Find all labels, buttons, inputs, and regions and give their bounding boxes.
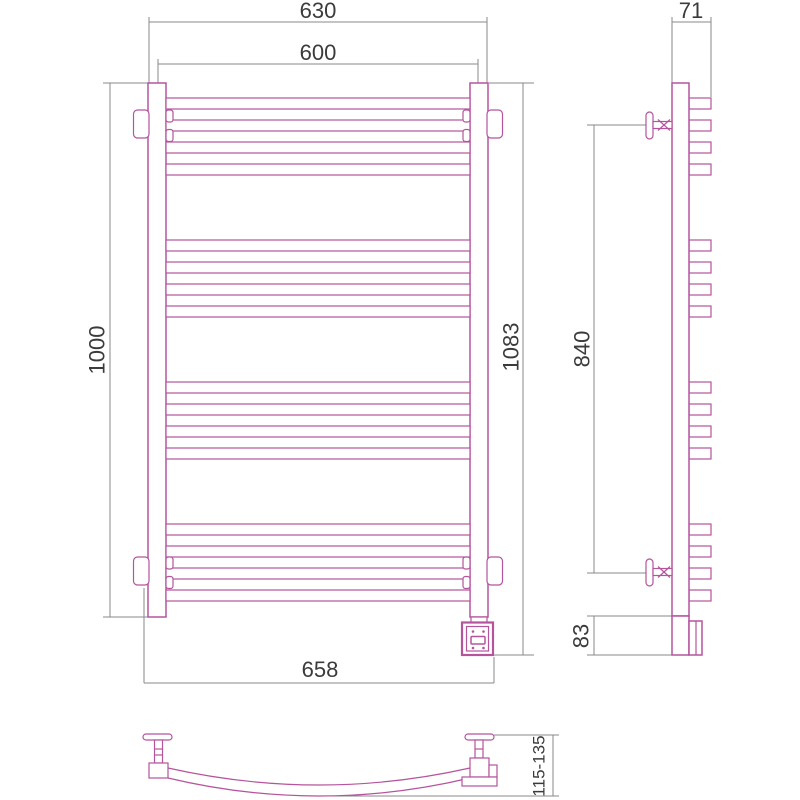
bottom-bracket-right xyxy=(462,734,497,786)
bracket-pin xyxy=(653,122,672,129)
wall-bracket xyxy=(487,110,503,138)
side-rail xyxy=(646,83,711,655)
bracket-plate xyxy=(646,112,653,139)
heater-base-plate xyxy=(462,777,497,786)
towel-rail-drawing: 630 600 1000 1083 658 xyxy=(0,0,800,800)
rail-bar xyxy=(166,164,470,175)
side-heater-box xyxy=(672,616,702,655)
rail-bar xyxy=(166,240,470,251)
bracket-step xyxy=(489,765,497,777)
side-bar xyxy=(689,426,711,437)
rail-bar xyxy=(166,98,470,109)
rail-bar xyxy=(166,426,470,437)
dim-front-rail-height: 1000 xyxy=(85,326,110,375)
rail-bar xyxy=(166,524,470,535)
side-bar xyxy=(689,120,711,131)
side-bar xyxy=(689,404,711,415)
bracket-block xyxy=(149,763,168,778)
side-wall-bracket-bottom xyxy=(646,559,672,586)
side-bar xyxy=(689,142,711,153)
bottom-view: 115-135 xyxy=(143,734,559,797)
rail-bar xyxy=(166,262,470,273)
curved-bar-front-edge xyxy=(168,768,470,785)
rail-bar xyxy=(166,382,470,393)
heater-screw xyxy=(482,647,485,650)
rail-bar xyxy=(166,120,470,131)
dim-side-bracket-span: 840 xyxy=(570,331,595,368)
side-post xyxy=(672,83,689,616)
front-heater-box xyxy=(462,617,493,655)
bracket-cap xyxy=(465,734,494,740)
rail-bar xyxy=(166,142,470,153)
rail-bar xyxy=(166,404,470,415)
side-bar xyxy=(689,284,711,295)
side-bar xyxy=(689,164,711,175)
dim-front-total-width: 658 xyxy=(302,657,339,682)
rail-bar xyxy=(166,568,470,579)
side-wall-bracket-top xyxy=(646,112,672,139)
wall-bracket xyxy=(134,557,150,585)
side-bar xyxy=(689,590,711,601)
side-view: 71 840 83 xyxy=(569,0,712,655)
dim-front-outer-width: 630 xyxy=(300,0,337,23)
rail-bar xyxy=(166,546,470,557)
mount-clip xyxy=(463,110,470,122)
mount-clip xyxy=(166,557,173,569)
mount-clip xyxy=(166,577,173,589)
dim-bottom-wall-distance: 115-135 xyxy=(530,735,549,796)
rail-bar xyxy=(166,306,470,317)
left-post xyxy=(148,83,166,617)
side-bar xyxy=(689,98,711,109)
side-bar xyxy=(689,382,711,393)
side-bar xyxy=(689,568,711,579)
bottom-dimensions: 115-135 xyxy=(330,735,559,797)
dim-side-box-height: 83 xyxy=(569,624,594,648)
mount-clip xyxy=(463,577,470,589)
heater-screw xyxy=(472,630,475,633)
technical-drawing-page: 630 600 1000 1083 658 xyxy=(0,0,800,800)
side-bar xyxy=(689,524,711,535)
rail-bar xyxy=(166,284,470,295)
bracket-stem xyxy=(155,740,163,763)
bottom-rail xyxy=(143,734,497,796)
front-view: 630 600 1000 1083 658 xyxy=(85,0,535,683)
bracket-plate xyxy=(646,559,653,586)
mount-clip xyxy=(166,110,173,122)
bracket-block xyxy=(470,758,489,777)
wall-bracket xyxy=(487,557,503,585)
heater-screw xyxy=(472,647,475,650)
dim-side-depth: 71 xyxy=(679,0,703,23)
mount-clip xyxy=(463,130,470,142)
rail-bar xyxy=(166,448,470,459)
heater-box-side xyxy=(672,616,689,655)
dim-front-center-width: 600 xyxy=(300,40,337,65)
right-post xyxy=(470,83,488,617)
bracket-cap xyxy=(143,734,172,740)
curved-bar-back-edge xyxy=(168,778,470,796)
side-bar xyxy=(689,306,711,317)
rail-bar xyxy=(166,590,470,601)
front-rail xyxy=(134,83,503,617)
mount-clip xyxy=(463,557,470,569)
heater-screw xyxy=(482,630,485,633)
side-bar xyxy=(689,546,711,557)
mount-clip xyxy=(166,130,173,142)
heater-display xyxy=(471,637,485,645)
side-bar xyxy=(689,448,711,459)
wall-bracket xyxy=(134,110,150,138)
bottom-bracket-left xyxy=(143,734,172,778)
bracket-pin xyxy=(653,569,672,576)
side-bar xyxy=(689,262,711,273)
dim-front-total-height: 1083 xyxy=(499,323,524,372)
side-bar xyxy=(689,240,711,251)
